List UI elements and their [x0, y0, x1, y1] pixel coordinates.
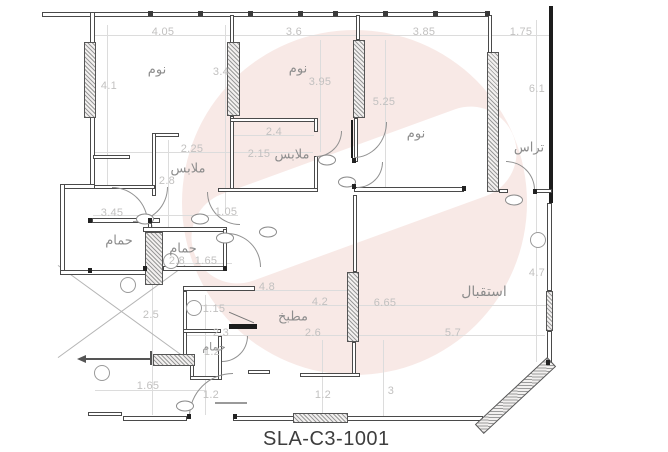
door-sill-line: [215, 402, 247, 404]
door-tag-icon: [318, 155, 336, 166]
wall-segment: [183, 291, 187, 357]
dimension-label: 2.15: [248, 148, 271, 160]
door-jamb: [233, 414, 237, 419]
wall-column-hatched: [353, 40, 365, 118]
door-jamb: [546, 360, 550, 365]
wall-segment: [314, 118, 318, 132]
dimension-label: 6.1: [529, 83, 545, 95]
wall-segment: [88, 412, 122, 416]
dimension-label: 1.2: [204, 346, 220, 358]
wall-segment: [230, 116, 234, 192]
column-marker: [333, 11, 338, 16]
dimension-extension-line: [225, 25, 226, 212]
wall-segment: [42, 12, 490, 17]
column-marker: [248, 11, 253, 16]
door-tag-icon: [176, 401, 194, 412]
room-label: مطبخ: [278, 310, 308, 325]
room-label: ملابس: [275, 148, 310, 163]
door-jamb: [352, 158, 356, 163]
dimension-extension-line: [383, 340, 384, 416]
dimension-label: 4.8: [259, 281, 275, 293]
wall-segment: [183, 286, 255, 291]
stair-tick: [150, 351, 152, 365]
wall-segment: [60, 184, 95, 189]
dimension-label: 2.8: [169, 255, 185, 267]
door-jamb: [462, 186, 466, 191]
wall-segment: [60, 184, 65, 275]
wall-column-hatched: [84, 42, 96, 118]
dimension-extension-line: [186, 305, 549, 306]
room-label: حمام: [105, 234, 133, 249]
dimension-label: 3.85: [413, 26, 436, 38]
wall-segment: [488, 15, 492, 53]
wall-segment: [143, 227, 227, 232]
stair-arrow-line: [86, 358, 152, 360]
column-marker: [485, 11, 490, 16]
wall-segment: [152, 133, 179, 137]
door-tag-icon: [216, 233, 234, 244]
dimension-label: 3.4: [213, 66, 229, 78]
dimension-label: 3.45: [101, 207, 124, 219]
dimension-label: 4.05: [152, 26, 175, 38]
dimension-label: 1.75: [510, 26, 533, 38]
dimension-label: 3: [388, 385, 394, 397]
dimension-label: 2.6: [305, 327, 321, 339]
dimension-label: 2.25: [181, 143, 204, 155]
floor-plan-canvas: نومنومنومتراسملابسملابسحمامحمامحماممطبخا…: [0, 0, 668, 452]
level-marker-icon: [120, 277, 136, 293]
door-jamb: [148, 218, 152, 223]
level-marker-icon: [186, 300, 202, 316]
wall-segment: [93, 155, 130, 159]
dimension-extension-line: [322, 340, 323, 416]
dimension-label: 4.2: [312, 296, 328, 308]
dimension-label: 2.5: [143, 309, 159, 321]
door-tag-icon: [259, 227, 277, 238]
door-swing-arc: [222, 336, 248, 362]
dimension-label: 1.65: [137, 380, 160, 392]
dimension-label: 4.1: [101, 80, 117, 92]
wall-segment: [248, 370, 270, 374]
column-marker: [298, 11, 303, 16]
door-jamb: [143, 266, 147, 271]
dimension-label: 1.15: [203, 303, 226, 315]
dimension-label: 2.4: [266, 126, 282, 138]
wall-column-hatched: [293, 413, 348, 423]
room-label: نوم: [148, 63, 166, 78]
dimension-label: 3.6: [286, 26, 302, 38]
column-marker: [383, 11, 388, 16]
room-label: تراس: [514, 141, 544, 156]
wall-column-hatched: [347, 272, 359, 342]
drawing-title: SLA-C3-1001: [263, 428, 390, 451]
wall-column-hatched: [546, 291, 553, 331]
room-label: نوم: [289, 62, 307, 77]
wall-segment: [230, 15, 234, 43]
wall-segment: [356, 15, 360, 40]
dimension-extension-line: [385, 40, 386, 187]
door-jamb: [88, 268, 92, 273]
room-label: نوم: [407, 127, 425, 142]
door-jamb: [223, 266, 227, 271]
column-marker: [198, 11, 203, 16]
door-jamb: [352, 184, 356, 189]
wall-segment: [549, 6, 553, 203]
dimension-label: 2.3: [213, 327, 229, 339]
dimension-label: 5.7: [445, 327, 461, 339]
wall-segment: [351, 120, 353, 158]
door-jamb: [187, 414, 191, 419]
dimension-label: 6.65: [374, 297, 397, 309]
dimension-label: 3.95: [309, 76, 332, 88]
dimension-label: 2.8: [159, 175, 175, 187]
door-jamb: [88, 218, 92, 223]
dimension-extension-line: [107, 25, 108, 188]
door-jamb: [533, 189, 537, 194]
wall-column-hatched: [153, 354, 195, 366]
dimension-label: 1.05: [215, 206, 238, 218]
wall-segment: [352, 342, 356, 376]
stair-arrow-icon: [77, 355, 86, 363]
level-marker-icon: [94, 365, 110, 381]
wall-segment: [354, 187, 464, 192]
wall-segment: [229, 324, 257, 329]
dimension-label: 4.7: [529, 267, 545, 279]
wall-segment: [353, 195, 357, 272]
column-marker: [433, 11, 438, 16]
wall-segment: [547, 203, 552, 291]
wall-segment: [230, 118, 318, 122]
dimension-label: 5.25: [373, 96, 396, 108]
dimension-label: 1.2: [315, 389, 331, 401]
dimension-label: 1.65: [195, 255, 218, 267]
room-label: ملابس: [171, 162, 206, 177]
wall-segment: [123, 416, 187, 421]
wall-segment: [300, 373, 360, 377]
column-marker: [148, 11, 153, 16]
dimension-label: 1.2: [203, 389, 219, 401]
wall-segment: [60, 270, 150, 275]
door-tag-icon: [505, 195, 523, 206]
wall-diagonal-hatched: [475, 357, 556, 434]
wall-column-hatched: [145, 232, 163, 285]
wall-segment: [233, 416, 483, 421]
wall-column-hatched: [487, 52, 499, 192]
wall-column-hatched: [227, 42, 240, 116]
room-label: استقبال: [461, 284, 507, 300]
door-swing-arc: [506, 161, 535, 190]
level-marker-icon: [530, 232, 546, 248]
door-tag-icon: [191, 214, 209, 225]
